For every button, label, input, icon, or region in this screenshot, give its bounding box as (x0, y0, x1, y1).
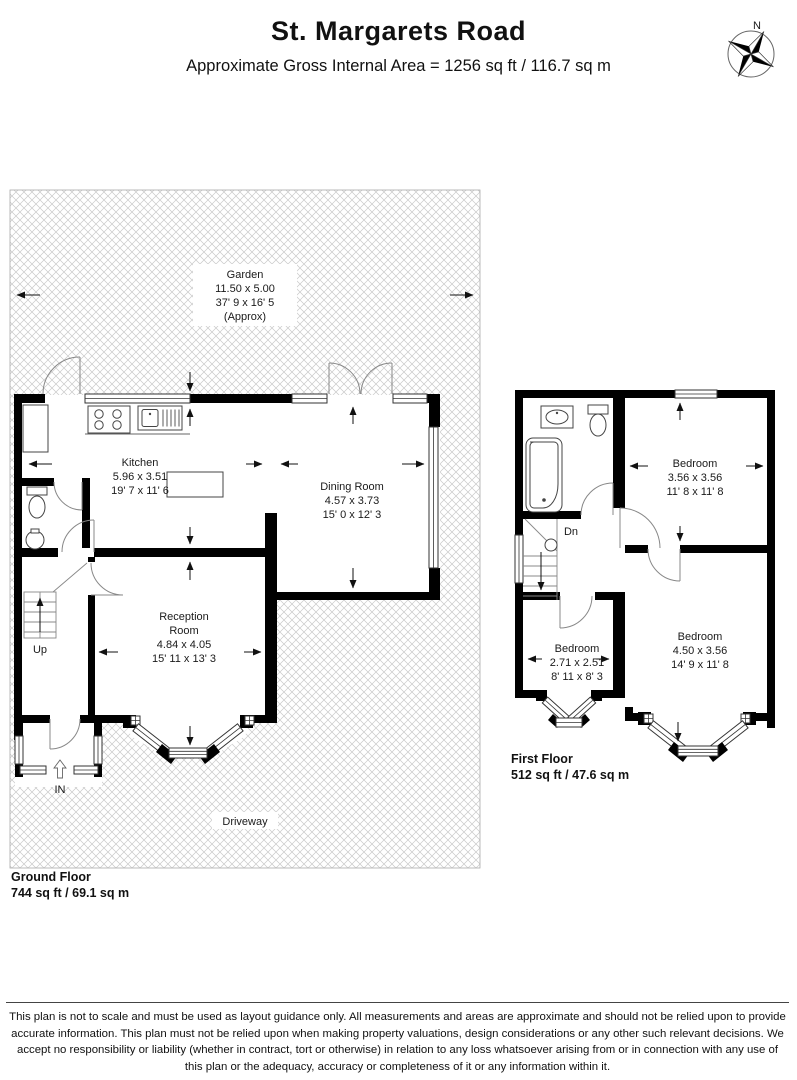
garden-dim-imperial: 37' 9 x 16' 5 (216, 297, 275, 309)
disclaimer-text: This plan is not to scale and must be us… (6, 1002, 789, 1080)
ground-floor-plan: Garden 11.50 x 5.00 37' 9 x 16' 5 (Appro… (10, 190, 480, 868)
kitchen-dim-metric: 5.96 x 3.51 (113, 471, 167, 483)
bedroom1-dim-imperial: 11' 8 x 11' 8 (667, 486, 724, 498)
dining-dim-imperial: 15' 0 x 12' 3 (323, 509, 382, 521)
ground-floor-title: Ground Floor (11, 869, 129, 885)
ground-floor-area-label: Ground Floor 744 sq ft / 69.1 sq m (11, 869, 129, 902)
dining-label: Dining Room (320, 481, 384, 493)
compass-north-label: N (753, 20, 761, 32)
garden-label: Garden (227, 269, 264, 281)
stairs-up-label: Up (33, 644, 47, 656)
floorplan-page: St. Margarets Road Approximate Gross Int… (0, 0, 797, 1080)
reception-label-1: Reception (159, 611, 209, 623)
reception-dim-metric: 4.84 x 4.05 (157, 639, 211, 651)
bathroom-sink-icon (541, 406, 573, 428)
bedroom3-label: Bedroom (678, 631, 723, 643)
garden-dim-metric: 11.50 x 5.00 (215, 283, 275, 295)
compass-rose: N (728, 20, 774, 77)
garden-approx: (Approx) (224, 311, 266, 323)
bedroom2-dim-imperial: 8' 11 x 8' 3 (551, 671, 603, 683)
ground-floor-area: 744 sq ft / 69.1 sq m (11, 885, 129, 901)
toilet-icon (27, 487, 47, 495)
kitchen-island (167, 472, 223, 497)
bedroom2-label: Bedroom (555, 643, 600, 655)
reception-label-2: Room (169, 625, 198, 637)
reception-dim-imperial: 15' 11 x 13' 3 (152, 653, 216, 665)
dining-dim-metric: 4.57 x 3.73 (325, 495, 379, 507)
first-floor-area: 512 sq ft / 47.6 sq m (511, 767, 629, 783)
compass-star-icon (729, 32, 774, 77)
bedroom3-dim-metric: 4.50 x 3.56 (673, 645, 727, 657)
first-floor-title: First Floor (511, 751, 629, 767)
stairs-dn-label: Dn (564, 526, 578, 538)
kitchen-dim-imperial: 19' 7 x 11' 6 (111, 485, 169, 497)
first-floor-area-label: First Floor 512 sq ft / 47.6 sq m (511, 751, 629, 784)
floor-plan-drawing: N (0, 0, 797, 1080)
bedroom3-dim-imperial: 14' 9 x 11' 8 (671, 659, 729, 671)
entrance-in-label: IN (55, 784, 66, 796)
bathtub-icon (526, 438, 562, 512)
bedroom1-label: Bedroom (673, 458, 718, 470)
bedroom1-dim-metric: 3.56 x 3.56 (668, 472, 722, 484)
driveway-label: Driveway (222, 816, 268, 828)
bedroom2-dim-metric: 2.71 x 2.51 (550, 657, 604, 669)
hob-icon (88, 406, 130, 433)
kitchen-label: Kitchen (122, 457, 159, 469)
sink-icon (138, 406, 182, 430)
first-floor-plan: Bedroom 3.56 x 3.56 11' 8 x 11' 8 Bedroo… (515, 390, 775, 762)
basin-icon (26, 531, 44, 549)
kitchen-counter (85, 406, 190, 434)
kitchen-cupboard (23, 405, 48, 452)
toilet-icon-ff (588, 405, 608, 436)
